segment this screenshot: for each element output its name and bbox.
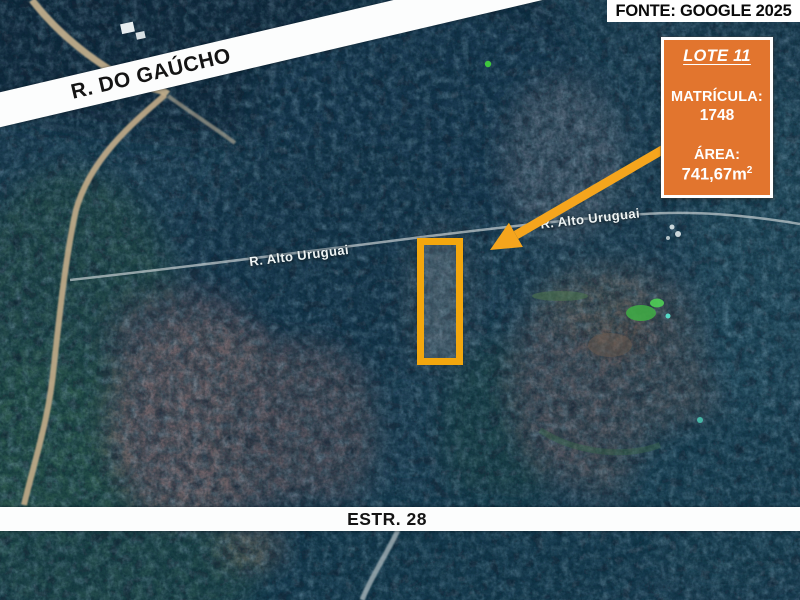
area-label: ÁREA: (694, 147, 740, 163)
lot-title: LOTE 11 (683, 47, 751, 66)
road-band-estrada-28: ESTR. 28 (0, 507, 800, 531)
property-map-flyer: R. DO GAÚCHO ESTR. 28 R. Alto Uruguai R.… (0, 0, 800, 600)
registry-number: 1748 (700, 107, 734, 125)
source-credit-text: FONTE: GOOGLE 2025 (615, 2, 791, 21)
source-credit-strip: FONTE: GOOGLE 2025 (607, 0, 800, 22)
area-value: 741,67m2 (682, 165, 753, 185)
road-label-estrada-28: ESTR. 28 (347, 509, 427, 530)
registry-label: MATRÍCULA: (671, 89, 763, 105)
green-marker-dot (485, 61, 491, 67)
lot-11-boundary-highlight (417, 238, 463, 365)
lot-info-callout: LOTE 11 MATRÍCULA: 1748 ÁREA: 741,67m2 (661, 37, 773, 198)
